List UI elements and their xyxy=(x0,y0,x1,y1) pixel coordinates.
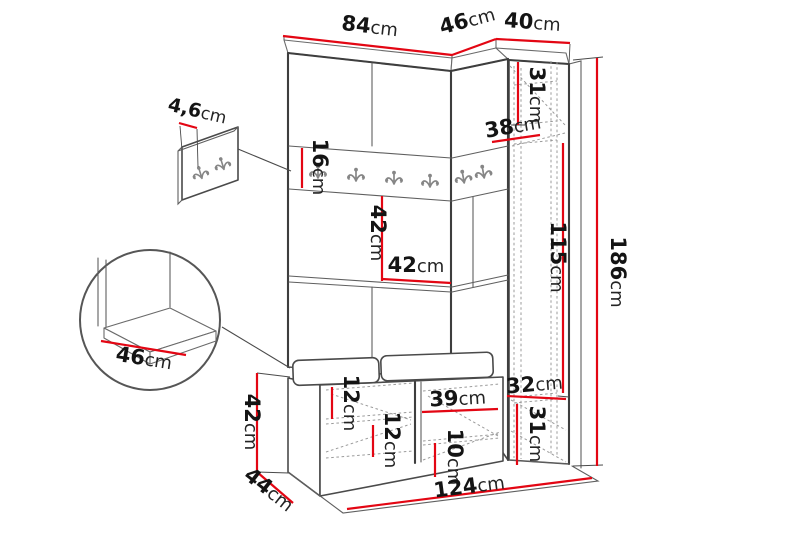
label-bench-height: 42cm xyxy=(240,394,264,451)
bench-cushion-left xyxy=(293,358,380,386)
label-bench-shelf-upper: 12cm xyxy=(339,375,363,432)
dim-line-4-6 xyxy=(179,123,197,128)
seat-detail-circle xyxy=(80,250,290,390)
label-top-width-main: 84cm xyxy=(340,11,399,41)
label-wall-panel-depth: 4,6cm xyxy=(166,94,229,129)
label-niche-width: 42cm xyxy=(388,253,445,277)
label-top-width-corner: 46cm xyxy=(437,1,498,39)
wall-hook-panel xyxy=(178,127,291,204)
diagram-canvas: 84cm 46cm 40cm 4,6cm 16cm 31cm 38cm 42cm… xyxy=(0,0,800,533)
label-total-height: 186cm xyxy=(606,236,630,307)
label-column-mid-height: 115cm xyxy=(546,221,570,292)
label-column-bottom-height: 31cm xyxy=(525,406,549,463)
dim-line-40 xyxy=(496,39,570,43)
label-rail-height: 16cm xyxy=(308,139,332,196)
bench-cushion-right xyxy=(381,352,494,381)
label-niche-height: 42cm xyxy=(366,205,390,262)
label-bench-shelf-lower: 12cm xyxy=(380,412,404,469)
bench-side-face xyxy=(288,378,320,496)
label-top-width-column: 40cm xyxy=(503,8,561,36)
label-bench-niche-width: 39cm xyxy=(429,385,487,412)
detail-leader-line xyxy=(222,327,290,368)
panel-leader-line xyxy=(238,149,291,171)
label-column-bottom-depth: 32cm xyxy=(505,370,564,399)
furniture-dimension-diagram: 84cm 46cm 40cm 4,6cm 16cm 31cm 38cm 42cm… xyxy=(0,0,800,533)
